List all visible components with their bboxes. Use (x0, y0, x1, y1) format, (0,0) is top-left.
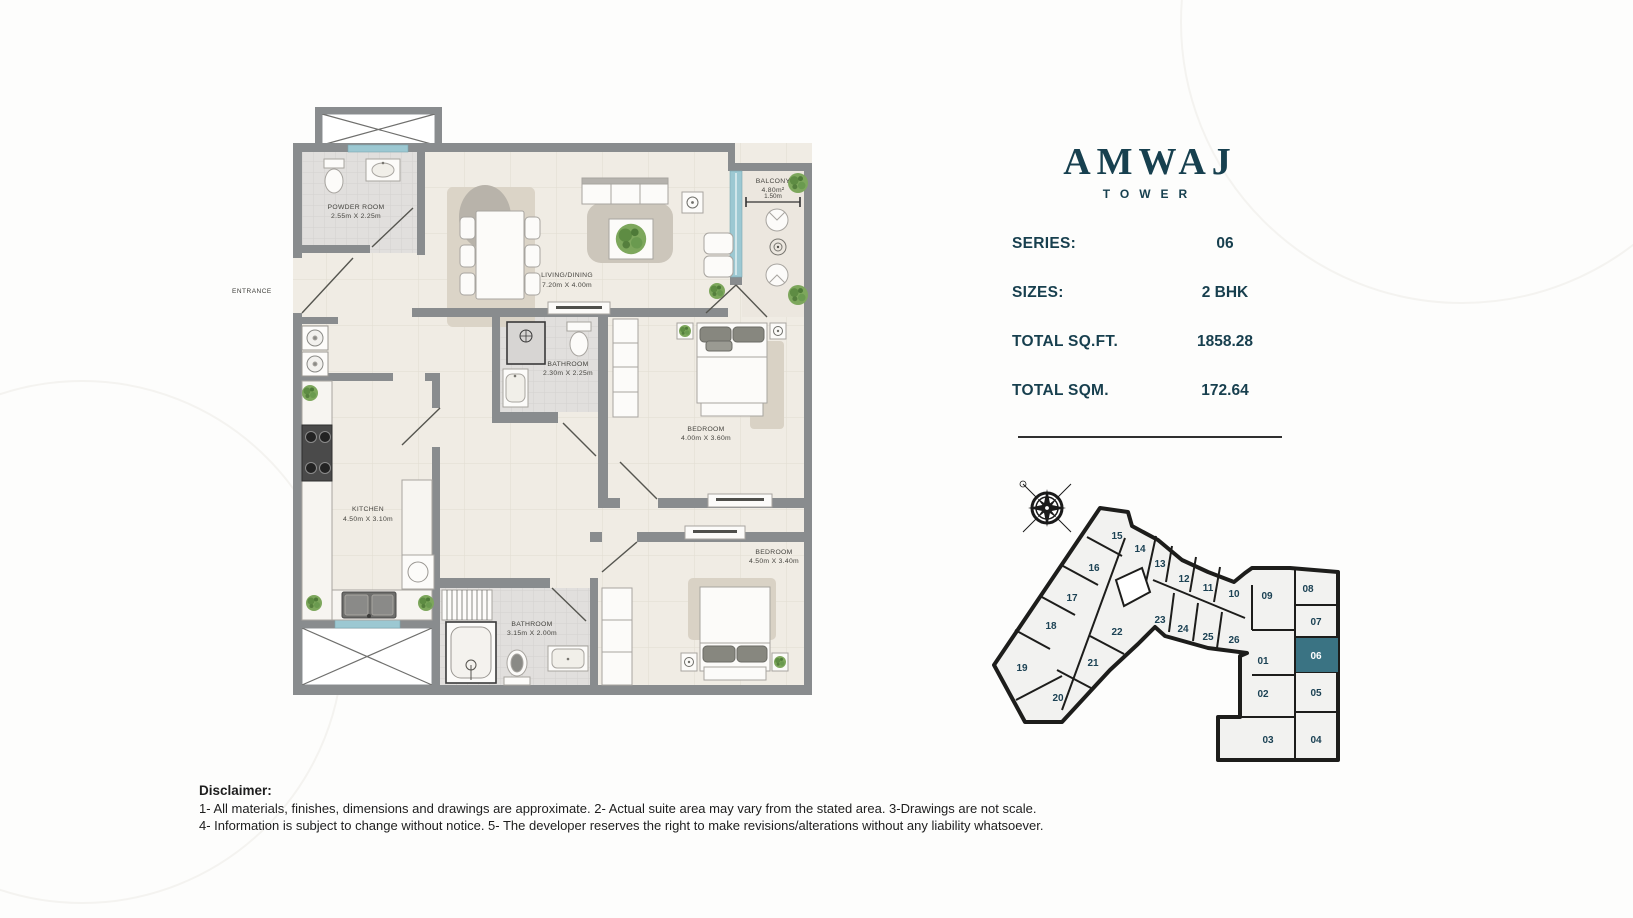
unit-label-10: 10 (1228, 589, 1240, 600)
sofa (582, 178, 668, 204)
side-table (682, 192, 703, 213)
disclaimer-line2: 4- Information is subject to change with… (199, 818, 1099, 835)
unit-label-25: 25 (1202, 632, 1214, 643)
brand-logo: AMWAJ TOWER (1010, 140, 1290, 201)
kitchen-counter-bottom (332, 590, 432, 620)
balcony-label: BALCONY (756, 178, 791, 185)
sqft-value: 1858.28 (1166, 333, 1284, 351)
unit-label-13: 13 (1154, 559, 1166, 570)
unit-label-16: 16 (1088, 563, 1100, 574)
dining-table (460, 211, 540, 299)
bathroom1-sink (503, 369, 528, 407)
page: POWDER ROOM 2.55m X 2.25m LIVING/DINING … (0, 0, 1633, 918)
washer (302, 326, 328, 350)
sqm-value: 172.64 (1166, 382, 1284, 400)
bedroom2-label: BEDROOM (755, 549, 792, 556)
bathroom1-label: BATHROOM (547, 361, 588, 368)
bed-bedroom2 (700, 587, 770, 680)
brand-subtitle: TOWER (1010, 187, 1290, 201)
unit-label-26: 26 (1228, 635, 1240, 646)
unit-label-24: 24 (1177, 624, 1189, 635)
unit-label-07: 07 (1310, 617, 1322, 628)
service-shaft (322, 114, 435, 145)
series-value: 06 (1166, 235, 1284, 253)
unit-label-03: 03 (1262, 735, 1274, 746)
floor-plan: POWDER ROOM 2.55m X 2.25m LIVING/DINING … (280, 95, 832, 695)
stove (302, 425, 332, 481)
disclaimer-title: Disclaimer: (199, 783, 1099, 798)
wardrobe-bedroom2 (602, 588, 632, 685)
unit-label-21: 21 (1087, 658, 1099, 669)
balcony-width-dim: 1.50m (764, 193, 782, 200)
void-box (302, 628, 432, 685)
disclaimer-line1: 1- All materials, finishes, dimensions a… (199, 801, 1099, 818)
kitchen-label: KITCHEN (352, 506, 384, 513)
unit-label-02: 02 (1257, 689, 1269, 700)
bathroom1-dims: 2.30m X 2.25m (543, 370, 593, 377)
unit-label-18: 18 (1045, 621, 1057, 632)
shower (507, 322, 545, 364)
unit-label-08: 08 (1302, 584, 1314, 595)
key-plan: 15 14 16 13 12 11 10 09 17 18 22 23 24 2… (950, 460, 1350, 772)
bathtub (446, 622, 496, 683)
detail-row-sqft: TOTAL SQ.FT. 1858.28 (1012, 331, 1284, 353)
brand-name: AMWAJ (1010, 140, 1290, 184)
bedroom2-dims: 4.50m X 3.40m (749, 558, 799, 565)
kitchen-counter-right (402, 480, 432, 555)
divider-line (1018, 436, 1282, 438)
living-dining-label: LIVING/DINING (541, 272, 593, 279)
sqft-label: TOTAL SQ.FT. (1012, 333, 1166, 351)
kitchen-dims: 4.50m X 3.10m (343, 516, 393, 523)
unit-label-12: 12 (1178, 574, 1190, 585)
unit-label-22: 22 (1111, 627, 1123, 638)
disclaimer: Disclaimer: 1- All materials, finishes, … (199, 783, 1099, 834)
unit-label-19: 19 (1016, 663, 1028, 674)
powder-room-label: POWDER ROOM (328, 204, 385, 211)
unit-label-14: 14 (1134, 544, 1146, 555)
building-outline (994, 508, 1338, 760)
unit-label-17: 17 (1066, 593, 1078, 604)
bedroom1-dims: 4.00m X 3.60m (681, 435, 731, 442)
fridge (402, 555, 434, 589)
powder-toilet (324, 159, 344, 193)
unit-label-20: 20 (1052, 693, 1064, 704)
compass-icon (1020, 481, 1071, 532)
bedroom1-label: BEDROOM (687, 426, 724, 433)
unit-label-05: 05 (1310, 688, 1322, 699)
unit-label-15: 15 (1111, 531, 1123, 542)
bathroom2-dims: 3.15m X 2.00m (507, 630, 557, 637)
wardrobe-bedroom1 (613, 319, 638, 417)
detail-row-sqm: TOTAL SQM. 172.64 (1012, 380, 1284, 402)
unit-label-04: 04 (1310, 735, 1322, 746)
kitchen-counter-left (302, 381, 332, 620)
sizes-value: 2 BHK (1166, 284, 1284, 302)
nightstand-right-bedroom1 (770, 323, 786, 339)
unit-label-23: 23 (1154, 615, 1166, 626)
detail-row-sizes: SIZES: 2 BHK (1012, 282, 1284, 304)
linen-louver (442, 590, 492, 620)
tv-console (548, 302, 610, 314)
unit-label-06: 06 (1310, 651, 1322, 662)
unit-label-11: 11 (1203, 583, 1214, 594)
bathroom2-label: BATHROOM (511, 621, 552, 628)
dryer (302, 352, 328, 376)
powder-room-floor (302, 152, 425, 253)
bed-bedroom1 (697, 323, 767, 416)
living-dining-dims: 7.20m X 4.00m (542, 282, 592, 289)
nightstand-left-bedroom2 (681, 653, 697, 671)
bathroom2-sink (548, 646, 588, 671)
sizes-label: SIZES: (1012, 284, 1166, 302)
powder-room-dims: 2.55m X 2.25m (331, 213, 381, 220)
powder-sink (366, 159, 400, 181)
unit-label-01: 01 (1257, 656, 1269, 667)
sqm-label: TOTAL SQM. (1012, 382, 1166, 400)
series-label: SERIES: (1012, 235, 1166, 253)
unit-label-09: 09 (1261, 591, 1273, 602)
detail-row-series: SERIES: 06 (1012, 233, 1284, 255)
entrance-label: ENTRANCE (232, 288, 272, 295)
